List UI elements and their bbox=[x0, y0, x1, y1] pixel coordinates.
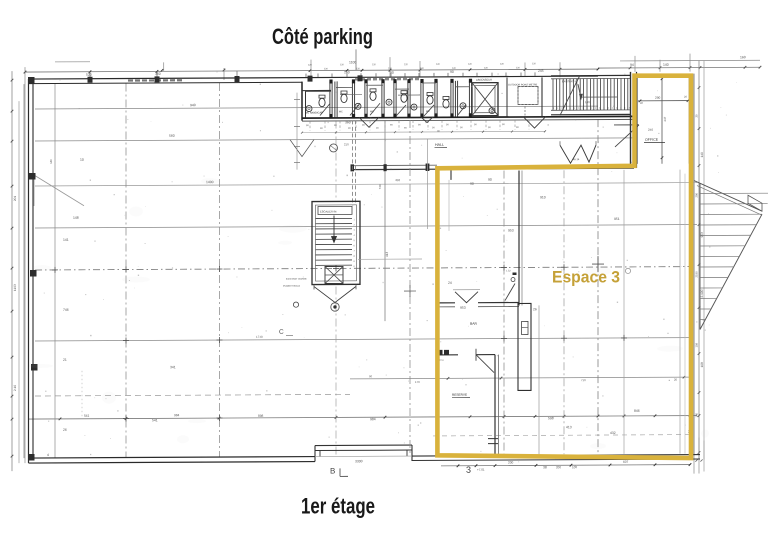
svg-text:10: 10 bbox=[80, 158, 84, 162]
svg-text:951: 951 bbox=[614, 217, 620, 221]
svg-text:1.52: 1.52 bbox=[506, 270, 511, 273]
svg-text:ESCALIER 94: ESCALIER 94 bbox=[320, 209, 337, 213]
svg-text:140: 140 bbox=[49, 159, 53, 164]
svg-text:598: 598 bbox=[548, 416, 554, 420]
svg-text:413: 413 bbox=[385, 252, 389, 258]
svg-text:170: 170 bbox=[415, 380, 420, 384]
svg-text:541: 541 bbox=[152, 418, 158, 422]
svg-text:BAR: BAR bbox=[470, 322, 478, 326]
svg-text:984: 984 bbox=[370, 417, 376, 421]
svg-text:447: 447 bbox=[663, 116, 667, 121]
svg-text:OUTDOOR POINT METRE: OUTDOOR POINT METRE bbox=[508, 83, 538, 86]
svg-text:240: 240 bbox=[648, 128, 653, 132]
svg-text:1193: 1193 bbox=[13, 284, 17, 291]
svg-text:20: 20 bbox=[674, 378, 678, 382]
svg-text:EXISTANT GARDE: EXISTANT GARDE bbox=[286, 278, 307, 281]
svg-text:140: 140 bbox=[695, 412, 699, 417]
svg-text:520: 520 bbox=[86, 73, 92, 77]
svg-text:1740: 1740 bbox=[256, 335, 263, 339]
svg-text:WC: WC bbox=[370, 111, 374, 113]
svg-text:2.10: 2.10 bbox=[13, 385, 17, 391]
svg-text:210: 210 bbox=[344, 142, 349, 146]
svg-text:160: 160 bbox=[740, 55, 746, 59]
svg-text:560: 560 bbox=[169, 134, 175, 138]
svg-text:846: 846 bbox=[634, 409, 640, 413]
svg-text:746: 746 bbox=[63, 308, 69, 312]
svg-text:140: 140 bbox=[585, 100, 590, 104]
svg-text:RESERVE: RESERVE bbox=[452, 393, 467, 397]
svg-text:953: 953 bbox=[508, 229, 514, 233]
svg-text:B: B bbox=[330, 466, 335, 475]
svg-text:607: 607 bbox=[623, 460, 629, 464]
svg-text:245: 245 bbox=[538, 69, 544, 73]
svg-text:953: 953 bbox=[460, 306, 466, 310]
svg-text:26: 26 bbox=[533, 307, 537, 311]
svg-text:30: 30 bbox=[695, 114, 699, 118]
svg-text:90: 90 bbox=[470, 182, 474, 186]
svg-text:38: 38 bbox=[543, 465, 547, 469]
svg-text:148: 148 bbox=[73, 216, 79, 220]
svg-text:413: 413 bbox=[566, 425, 572, 429]
svg-text:296: 296 bbox=[695, 192, 699, 197]
svg-text:WC HANDICAP: WC HANDICAP bbox=[305, 112, 323, 115]
svg-text:541: 541 bbox=[84, 414, 90, 418]
svg-text:3: 3 bbox=[466, 465, 471, 475]
svg-text:90: 90 bbox=[450, 70, 454, 74]
svg-text:290: 290 bbox=[655, 96, 661, 100]
svg-text:4: 4 bbox=[47, 453, 49, 457]
svg-text:WC: WC bbox=[426, 111, 430, 113]
svg-text:Espace 3: Espace 3 bbox=[552, 269, 620, 287]
svg-text:898: 898 bbox=[258, 414, 264, 418]
svg-text:2.190: 2.190 bbox=[700, 289, 704, 297]
svg-text:141: 141 bbox=[63, 238, 69, 242]
svg-text:POSENT BACS: POSENT BACS bbox=[283, 285, 300, 288]
svg-text:21: 21 bbox=[63, 358, 67, 362]
svg-text:1er étage: 1er étage bbox=[301, 494, 375, 519]
svg-text:1100: 1100 bbox=[349, 60, 356, 64]
svg-text:49 14: 49 14 bbox=[573, 158, 580, 161]
svg-text:200: 200 bbox=[508, 461, 514, 465]
svg-text:WC: WC bbox=[339, 111, 343, 113]
svg-text:OFFICE: OFFICE bbox=[645, 138, 659, 142]
svg-text:953: 953 bbox=[700, 232, 704, 238]
svg-text:50: 50 bbox=[369, 374, 373, 378]
svg-text:341: 341 bbox=[170, 365, 176, 369]
svg-text:458: 458 bbox=[395, 178, 400, 182]
svg-text:90: 90 bbox=[488, 178, 492, 182]
svg-text:160: 160 bbox=[344, 70, 350, 74]
svg-text:108: 108 bbox=[700, 362, 704, 368]
svg-text:Côté parking: Côté parking bbox=[272, 24, 373, 49]
svg-text:910: 910 bbox=[540, 195, 546, 199]
svg-text:26: 26 bbox=[63, 428, 67, 432]
svg-text:108: 108 bbox=[695, 342, 699, 347]
svg-text:90: 90 bbox=[390, 71, 394, 75]
svg-text:432: 432 bbox=[610, 431, 616, 435]
svg-text:EXISTANT 94: EXISTANT 94 bbox=[562, 80, 578, 83]
svg-text:24: 24 bbox=[448, 281, 452, 285]
svg-text:140: 140 bbox=[663, 63, 669, 67]
svg-text:HALL: HALL bbox=[435, 143, 444, 147]
svg-text:201: 201 bbox=[13, 196, 17, 202]
svg-text:100: 100 bbox=[572, 465, 577, 469]
svg-text:C: C bbox=[279, 329, 284, 336]
svg-text:360: 360 bbox=[345, 120, 351, 124]
svg-text:200: 200 bbox=[556, 465, 561, 469]
svg-text:140: 140 bbox=[700, 152, 704, 158]
svg-text:+7.01: +7.01 bbox=[477, 468, 485, 472]
svg-text:3300: 3300 bbox=[355, 459, 363, 463]
svg-text:710: 710 bbox=[581, 378, 586, 382]
svg-text:984: 984 bbox=[174, 413, 180, 417]
svg-text:2190: 2190 bbox=[695, 271, 699, 278]
svg-text:94: 94 bbox=[630, 63, 634, 67]
svg-text:730: 730 bbox=[378, 184, 382, 189]
svg-text:940: 940 bbox=[190, 103, 196, 107]
svg-text:ASCENSEUR: ASCENSEUR bbox=[476, 78, 492, 82]
svg-text:360: 360 bbox=[155, 72, 161, 76]
